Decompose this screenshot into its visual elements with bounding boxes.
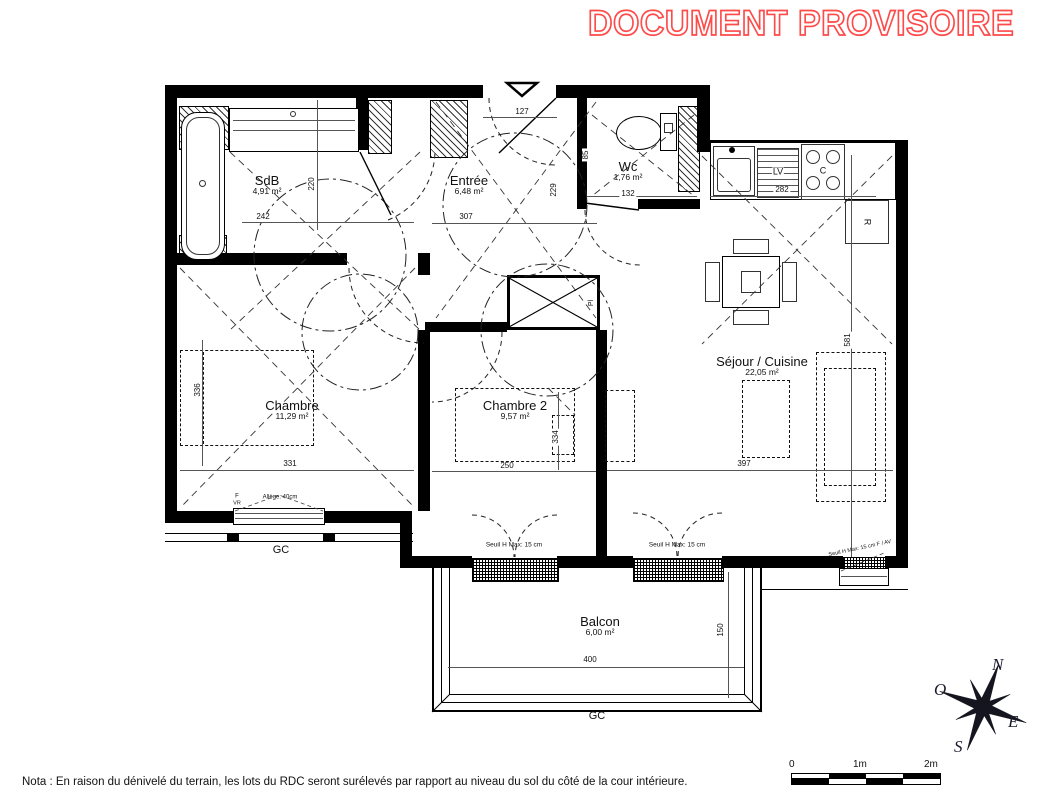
dim-label: 250 [498,462,515,470]
dim-line [483,117,557,118]
compass-east-label: E [1008,712,1018,732]
door-leaves [360,98,639,215]
dim-line [607,470,893,471]
allege-label: Allège: 40cm [263,495,298,502]
dim-label: 132 [619,190,636,198]
room-label-wc: Wc 1,76 m² [614,160,643,182]
dim-label: 220 [308,175,316,192]
seuil-label: Seuil H Max: 15 cm [486,542,542,549]
window-sill-marks [235,495,884,571]
compass-south-label: S [954,737,963,757]
room-label-chambre: Chambre 11,29 m² [265,399,318,421]
window-mark-f: F [235,494,239,501]
scale-cell [866,779,903,784]
door-swing-arcs [349,98,722,557]
scale-tick-0: 0 [789,759,795,770]
dim-label: 400 [581,656,598,664]
room-diagonal-marks [180,102,892,508]
dim-label: 229 [550,181,558,198]
dim-line [432,223,597,224]
scale-bar-row [791,778,941,785]
dim-label: 150 [717,621,725,638]
turning-circles [254,133,613,396]
scale-tick-1m: 1m [853,759,867,770]
entrance-arrow-icon [507,83,537,96]
dim-label: 85 [582,149,590,162]
seuil-label: Seuil H Max: 15 cm [649,542,705,549]
dim-line [448,667,744,668]
dim-label: 307 [457,213,474,221]
dim-label: 282 [773,186,790,194]
dim-line [851,155,852,557]
nota-text: Nota : En raison du dénivelé du terrain,… [22,776,687,788]
scale-cell [829,779,866,784]
dim-line [242,222,414,223]
dim-label: 581 [844,331,852,348]
dim-label: 127 [513,108,530,116]
dim-label: 334 [552,428,560,445]
dim-line [202,340,203,466]
gc-label: GC [273,544,290,556]
dim-label: 397 [735,460,752,468]
room-label-chambre2: Chambre 2 9,57 m² [483,399,547,421]
room-label-balcon: Balcon 6,00 m² [580,615,620,637]
room-label-sejour: Séjour / Cuisine 22,05 m² [716,355,808,377]
gc-label: GC [589,710,606,722]
room-label-sdb: SdB 4,91 m² [253,174,282,196]
dim-label: 331 [281,460,298,468]
window-mark-vr: VR [233,501,241,508]
scale-bar: 0 1m 2m [791,761,943,787]
dim-line [432,471,596,472]
compass-rose-icon [924,648,1042,766]
dim-line [317,100,318,230]
floor-plan-sheet: DOCUMENT PROVISOIRE [0,0,1061,800]
dim-label: 336 [194,381,202,398]
scale-tick-2m: 2m [924,759,938,770]
dim-line [180,470,414,471]
scale-cell [903,779,940,784]
dim-line [587,196,697,197]
dim-line [728,572,729,698]
compass-north-label: N [992,655,1003,675]
dim-label: 242 [254,213,271,221]
closet-cross [509,278,597,327]
room-label-entree: Entrée 6,48 m² [450,174,488,196]
scale-cell [792,779,829,784]
compass-west-label: O [934,680,946,700]
